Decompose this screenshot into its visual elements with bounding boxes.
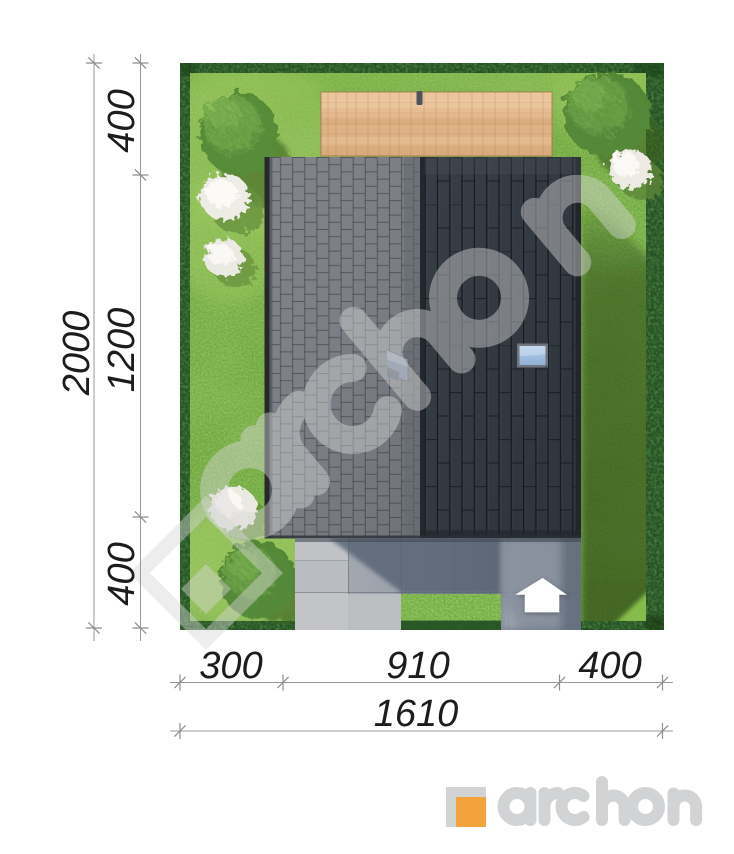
svg-text:1610: 1610 xyxy=(374,693,459,735)
svg-text:910: 910 xyxy=(386,645,449,687)
svg-text:400: 400 xyxy=(101,542,143,605)
svg-text:1200: 1200 xyxy=(101,308,143,393)
svg-text:300: 300 xyxy=(199,645,262,687)
svg-text:400: 400 xyxy=(101,89,143,152)
svg-text:400: 400 xyxy=(578,645,641,687)
svg-text:2000: 2000 xyxy=(56,311,98,397)
